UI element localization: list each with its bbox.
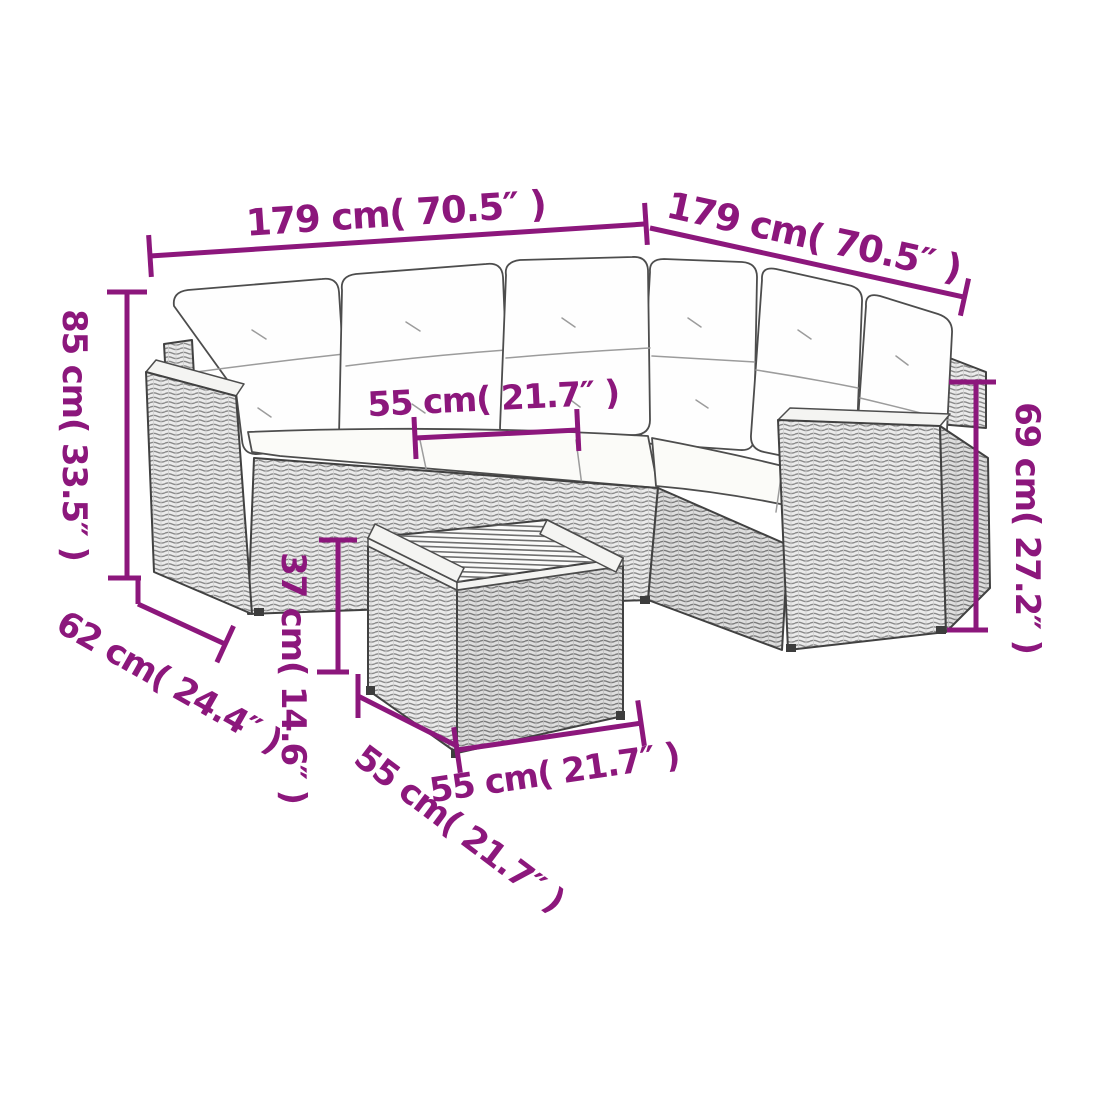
- sofa-base-corner: [648, 488, 788, 650]
- sofa-foot: [640, 596, 650, 604]
- dimension-label: 62 cm( 24.4″ ): [50, 603, 289, 762]
- product-dimension-diagram: 179 cm( 70.5″ ) 179 cm( 70.5″ ) 85 cm( 3…: [0, 0, 1100, 1100]
- coffee-table: [358, 520, 634, 758]
- dimension-tick: [577, 409, 579, 451]
- sofa-foot: [936, 626, 946, 634]
- dimension-label: 85 cm( 33.5″ ): [54, 309, 94, 561]
- table-foot: [616, 711, 625, 720]
- dimension-label: 69 cm( 27.2″ ): [1007, 402, 1047, 654]
- dimension-label: 37 cm( 14.6″ ): [273, 552, 313, 804]
- sofa-foot: [254, 608, 264, 616]
- right-armrest-side: [940, 426, 990, 632]
- table-foot: [366, 686, 375, 695]
- table-body-right: [457, 566, 623, 753]
- right-armrest-front: [778, 420, 946, 650]
- dimension-line: [138, 604, 225, 644]
- sofa-foot: [786, 644, 796, 652]
- back-cushion-corner: [641, 259, 757, 450]
- dimension-tick: [414, 417, 416, 459]
- dim-back-height: 85 cm( 33.5″ ): [54, 292, 147, 578]
- diagram-canvas: 179 cm( 70.5″ ) 179 cm( 70.5″ ) 85 cm( 3…: [0, 0, 1100, 1100]
- left-armrest-front: [146, 372, 252, 614]
- dimension-tick: [149, 235, 152, 277]
- dimension-tick: [645, 203, 648, 245]
